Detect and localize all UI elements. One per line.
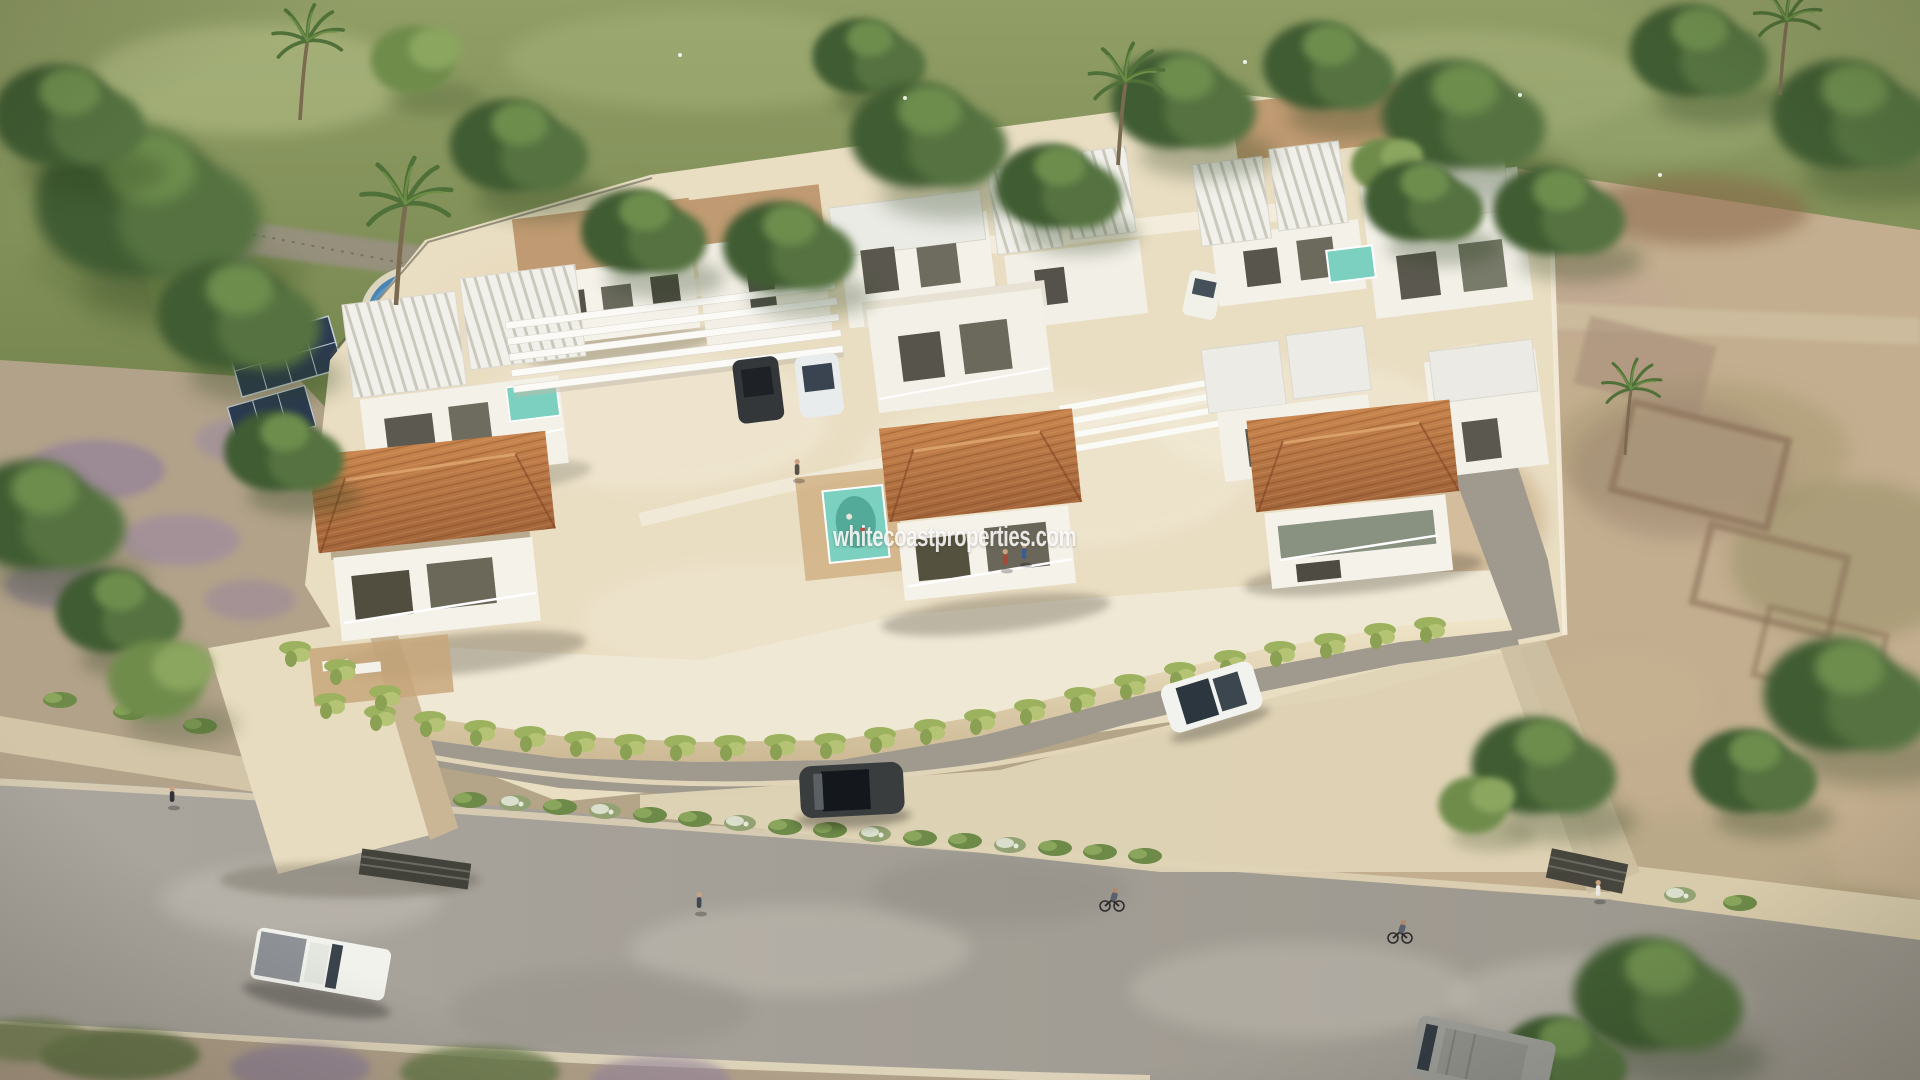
- vignette: [0, 0, 1920, 1080]
- render-canvas: whitecoastproperties.com: [0, 0, 1920, 1080]
